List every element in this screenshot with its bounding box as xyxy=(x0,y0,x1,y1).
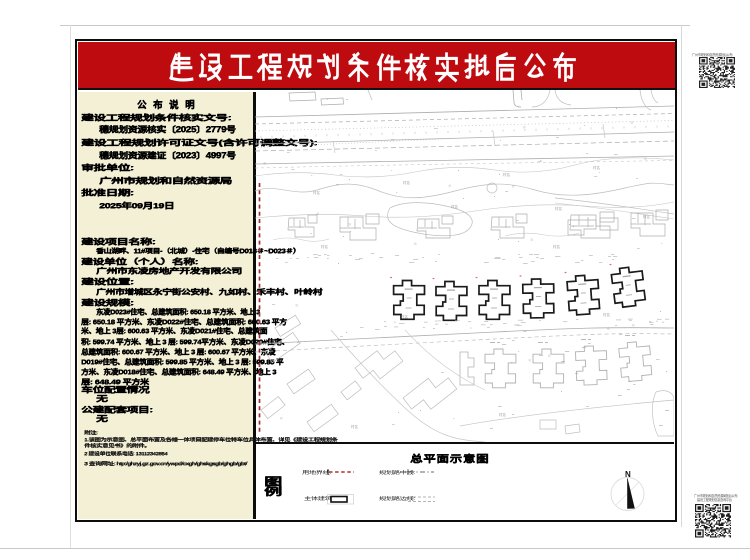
svg-text:村名: 村名 xyxy=(401,314,408,319)
svg-text:村名: 村名 xyxy=(503,172,510,177)
svg-text:村名: 村名 xyxy=(313,190,320,195)
svg-text:村名: 村名 xyxy=(553,244,560,249)
svg-text:村名: 村名 xyxy=(351,424,358,429)
svg-text:村名: 村名 xyxy=(321,244,328,249)
svg-text:村名: 村名 xyxy=(403,180,410,185)
svg-text:村名: 村名 xyxy=(643,214,650,219)
svg-text:村名: 村名 xyxy=(499,412,506,417)
svg-text:村名: 村名 xyxy=(603,312,610,317)
svg-text:村名: 村名 xyxy=(451,204,458,209)
svg-text:村名: 村名 xyxy=(593,165,600,170)
svg-text:村名: 村名 xyxy=(555,206,562,211)
